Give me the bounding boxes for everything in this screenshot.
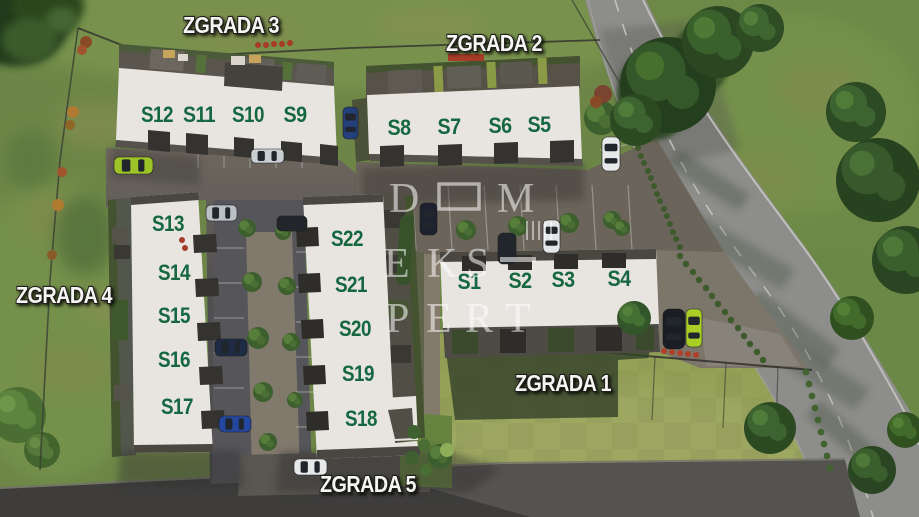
svg-text:E: E [426, 296, 452, 342]
svg-text:ZGRADA 5: ZGRADA 5 [320, 471, 417, 497]
svg-text:E: E [384, 241, 410, 287]
svg-text:S17: S17 [161, 394, 193, 419]
svg-text:S3: S3 [552, 267, 575, 292]
svg-text:R: R [465, 296, 493, 342]
svg-text:S18: S18 [345, 406, 377, 431]
svg-text:D: D [389, 176, 419, 222]
svg-text:S10: S10 [232, 102, 264, 127]
svg-text:ZGRADA 4: ZGRADA 4 [16, 282, 113, 308]
svg-text:K: K [427, 241, 457, 287]
svg-text:M: M [497, 176, 534, 222]
svg-text:S2: S2 [509, 268, 532, 293]
svg-text:S8: S8 [388, 115, 411, 140]
svg-text:ZGRADA 3: ZGRADA 3 [183, 12, 279, 38]
svg-text:S21: S21 [335, 272, 367, 297]
svg-text:S19: S19 [342, 361, 374, 386]
svg-text:ZGRADA 1: ZGRADA 1 [515, 370, 612, 396]
svg-text:S9: S9 [284, 102, 307, 127]
svg-text:S: S [466, 241, 489, 287]
svg-text:S6: S6 [489, 113, 512, 138]
svg-text:S7: S7 [438, 114, 461, 139]
svg-text:S12: S12 [141, 102, 173, 127]
svg-text:S15: S15 [158, 303, 190, 328]
svg-text:S14: S14 [158, 260, 191, 285]
svg-text:S22: S22 [331, 226, 363, 251]
svg-text:S5: S5 [528, 112, 551, 137]
svg-text:T: T [505, 296, 531, 342]
svg-text:S20: S20 [339, 316, 371, 341]
svg-text:S4: S4 [608, 266, 632, 291]
svg-text:S11: S11 [183, 102, 215, 127]
svg-text:P: P [386, 296, 409, 342]
svg-text:S16: S16 [158, 347, 190, 372]
svg-text:ZGRADA 2: ZGRADA 2 [446, 30, 542, 56]
svg-text:S13: S13 [152, 211, 184, 236]
